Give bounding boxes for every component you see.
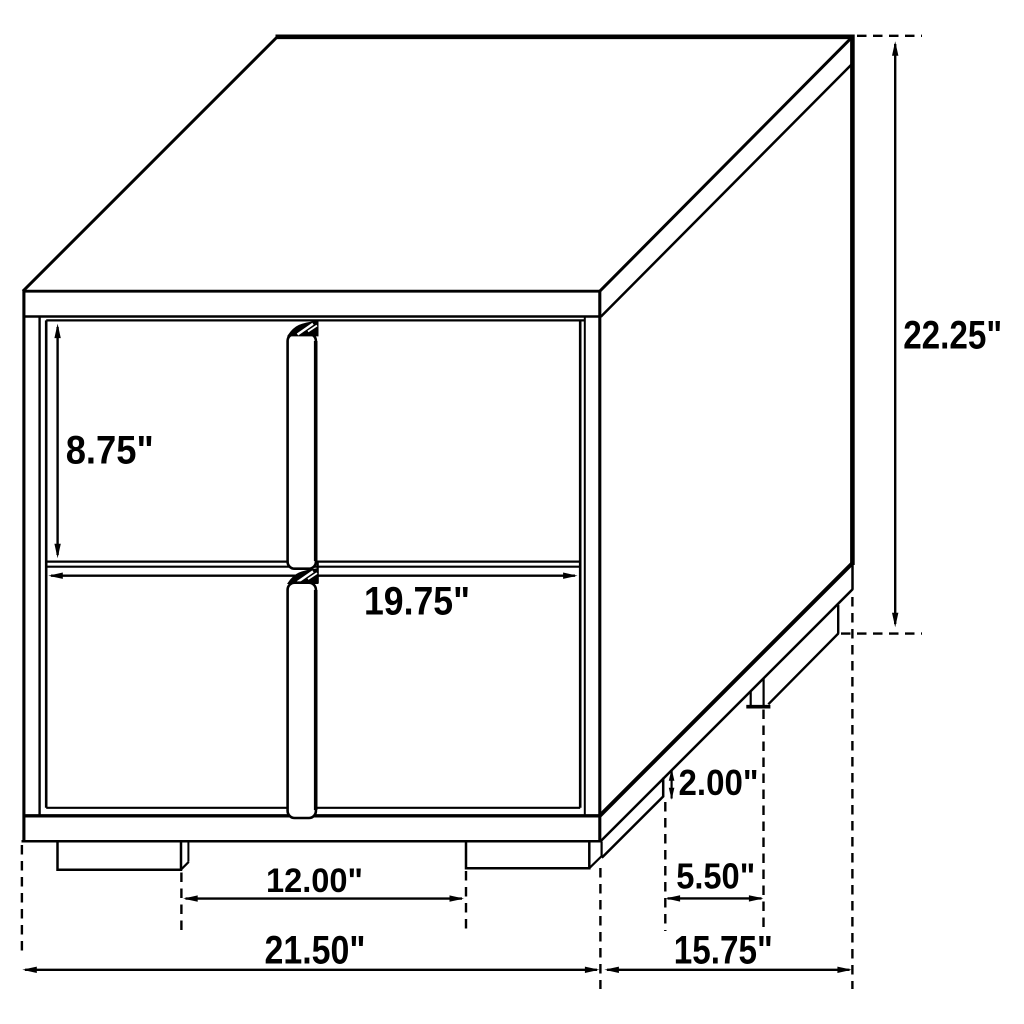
svg-text:8.75": 8.75": [66, 428, 154, 472]
svg-text:2.00": 2.00": [679, 762, 759, 803]
svg-text:15.75": 15.75": [674, 929, 773, 973]
svg-text:12.00": 12.00": [266, 862, 363, 900]
svg-text:5.50": 5.50": [676, 855, 755, 896]
svg-text:21.50": 21.50": [265, 929, 366, 973]
svg-text:22.25": 22.25": [903, 314, 1002, 358]
svg-text:19.75": 19.75": [364, 579, 470, 623]
